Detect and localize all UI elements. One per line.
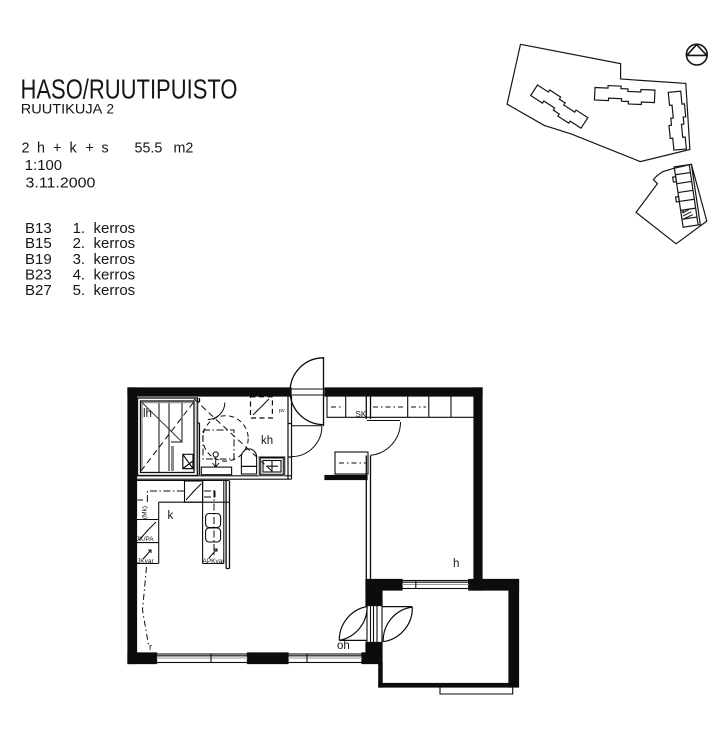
svg-text:SK: SK [356, 410, 367, 419]
svg-text:HASO/RUUTIPUISTO: HASO/RUUTIPUISTO [21, 73, 238, 104]
svg-text:pv: pv [279, 408, 285, 414]
svg-text:2h+k+s55.5m2: 2h+k+s55.5m2 [22, 140, 194, 156]
svg-text:(Mk): (Mk) [142, 506, 149, 519]
svg-text:B275.kerros: B275.kerros [25, 282, 135, 299]
svg-text:1:100: 1:100 [25, 158, 62, 174]
svg-text:h: h [453, 558, 459, 570]
svg-text:JKvar: JKvar [137, 558, 154, 565]
svg-text:B152.kerros: B152.kerros [25, 235, 135, 252]
svg-text:lh: lh [143, 408, 152, 420]
svg-text:k: k [168, 510, 174, 522]
svg-text:RUUTIKUJA: RUUTIKUJA [21, 102, 103, 117]
svg-text:kh: kh [261, 435, 273, 447]
svg-text:3.11.2000: 3.11.2000 [26, 175, 96, 191]
svg-text:r: r [149, 642, 152, 653]
svg-text:2: 2 [107, 102, 114, 117]
svg-text:B193.kerros: B193.kerros [25, 251, 135, 268]
svg-text:APKvar: APKvar [203, 558, 226, 565]
svg-text:oh: oh [337, 640, 350, 652]
svg-text:JK/PA: JK/PA [136, 536, 154, 543]
